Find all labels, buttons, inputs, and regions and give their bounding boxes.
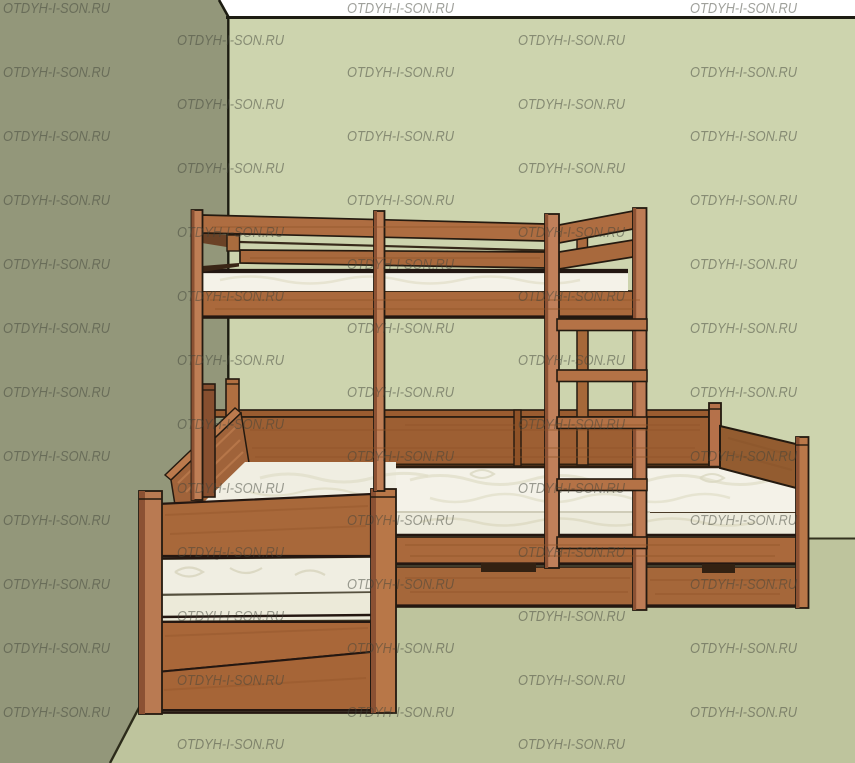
- svg-text:OTDYH-I-SON.RU: OTDYH-I-SON.RU: [347, 321, 454, 337]
- svg-text:OTDYH-I-SON.RU: OTDYH-I-SON.RU: [347, 65, 454, 81]
- svg-text:OTDYH-I-SON.RU: OTDYH-I-SON.RU: [3, 257, 110, 273]
- svg-text:OTDYH-I-SON.RU: OTDYH-I-SON.RU: [690, 257, 797, 273]
- svg-text:OTDYH-I-SON.RU: OTDYH-I-SON.RU: [347, 641, 454, 657]
- svg-text:OTDYH-I-SON.RU: OTDYH-I-SON.RU: [177, 737, 284, 753]
- svg-text:OTDYH-I-SON.RU: OTDYH-I-SON.RU: [177, 417, 284, 433]
- svg-text:OTDYH-I-SON.RU: OTDYH-I-SON.RU: [690, 513, 797, 529]
- svg-text:OTDYH-I-SON.RU: OTDYH-I-SON.RU: [518, 161, 625, 177]
- svg-text:OTDYH-I-SON.RU: OTDYH-I-SON.RU: [518, 417, 625, 433]
- svg-text:OTDYH-I-SON.RU: OTDYH-I-SON.RU: [518, 289, 625, 305]
- svg-text:OTDYH-I-SON.RU: OTDYH-I-SON.RU: [347, 577, 454, 593]
- svg-text:OTDYH-I-SON.RU: OTDYH-I-SON.RU: [3, 321, 110, 337]
- svg-text:OTDYH-I-SON.RU: OTDYH-I-SON.RU: [690, 321, 797, 337]
- svg-text:OTDYH-I-SON.RU: OTDYH-I-SON.RU: [177, 353, 284, 369]
- svg-text:OTDYH-I-SON.RU: OTDYH-I-SON.RU: [518, 353, 625, 369]
- svg-text:OTDYH-I-SON.RU: OTDYH-I-SON.RU: [3, 385, 110, 401]
- svg-text:OTDYH-I-SON.RU: OTDYH-I-SON.RU: [690, 577, 797, 593]
- svg-text:OTDYH-I-SON.RU: OTDYH-I-SON.RU: [347, 513, 454, 529]
- svg-text:OTDYH-I-SON.RU: OTDYH-I-SON.RU: [690, 705, 797, 721]
- svg-text:OTDYH-I-SON.RU: OTDYH-I-SON.RU: [690, 449, 797, 465]
- svg-text:OTDYH-I-SON.RU: OTDYH-I-SON.RU: [347, 449, 454, 465]
- svg-text:OTDYH-I-SON.RU: OTDYH-I-SON.RU: [518, 481, 625, 497]
- svg-text:OTDYH-I-SON.RU: OTDYH-I-SON.RU: [690, 641, 797, 657]
- svg-text:OTDYH-I-SON.RU: OTDYH-I-SON.RU: [177, 97, 284, 113]
- svg-text:OTDYH-I-SON.RU: OTDYH-I-SON.RU: [347, 257, 454, 273]
- svg-text:OTDYH-I-SON.RU: OTDYH-I-SON.RU: [177, 161, 284, 177]
- svg-text:OTDYH-I-SON.RU: OTDYH-I-SON.RU: [690, 193, 797, 209]
- svg-text:OTDYH-I-SON.RU: OTDYH-I-SON.RU: [690, 65, 797, 81]
- svg-text:OTDYH-I-SON.RU: OTDYH-I-SON.RU: [518, 225, 625, 241]
- svg-text:OTDYH-I-SON.RU: OTDYH-I-SON.RU: [177, 225, 284, 241]
- svg-text:OTDYH-I-SON.RU: OTDYH-I-SON.RU: [347, 193, 454, 209]
- svg-text:OTDYH-I-SON.RU: OTDYH-I-SON.RU: [3, 449, 110, 465]
- svg-text:OTDYH-I-SON.RU: OTDYH-I-SON.RU: [177, 609, 284, 625]
- svg-text:OTDYH-I-SON.RU: OTDYH-I-SON.RU: [3, 65, 110, 81]
- svg-text:OTDYH-I-SON.RU: OTDYH-I-SON.RU: [3, 577, 110, 593]
- svg-text:OTDYH-I-SON.RU: OTDYH-I-SON.RU: [3, 129, 110, 145]
- svg-text:OTDYH-I-SON.RU: OTDYH-I-SON.RU: [518, 737, 625, 753]
- svg-text:OTDYH-I-SON.RU: OTDYH-I-SON.RU: [518, 33, 625, 49]
- svg-text:OTDYH-I-SON.RU: OTDYH-I-SON.RU: [3, 193, 110, 209]
- svg-text:OTDYH-I-SON.RU: OTDYH-I-SON.RU: [690, 385, 797, 401]
- svg-text:OTDYH-I-SON.RU: OTDYH-I-SON.RU: [177, 289, 284, 305]
- svg-text:OTDYH-I-SON.RU: OTDYH-I-SON.RU: [177, 673, 284, 689]
- svg-text:OTDYH-I-SON.RU: OTDYH-I-SON.RU: [177, 33, 284, 49]
- svg-text:OTDYH-I-SON.RU: OTDYH-I-SON.RU: [3, 641, 110, 657]
- svg-text:OTDYH-I-SON.RU: OTDYH-I-SON.RU: [347, 385, 454, 401]
- svg-text:OTDYH-I-SON.RU: OTDYH-I-SON.RU: [3, 705, 110, 721]
- svg-text:OTDYH-I-SON.RU: OTDYH-I-SON.RU: [518, 609, 625, 625]
- svg-text:OTDYH-I-SON.RU: OTDYH-I-SON.RU: [3, 1, 110, 17]
- svg-text:OTDYH-I-SON.RU: OTDYH-I-SON.RU: [177, 481, 284, 497]
- svg-text:OTDYH-I-SON.RU: OTDYH-I-SON.RU: [347, 129, 454, 145]
- svg-text:OTDYH-I-SON.RU: OTDYH-I-SON.RU: [690, 129, 797, 145]
- svg-text:OTDYH-I-SON.RU: OTDYH-I-SON.RU: [347, 705, 454, 721]
- svg-text:OTDYH-I-SON.RU: OTDYH-I-SON.RU: [690, 1, 797, 17]
- svg-text:OTDYH-I-SON.RU: OTDYH-I-SON.RU: [347, 1, 454, 17]
- svg-text:OTDYH-I-SON.RU: OTDYH-I-SON.RU: [518, 673, 625, 689]
- svg-text:OTDYH-I-SON.RU: OTDYH-I-SON.RU: [177, 545, 284, 561]
- svg-text:OTDYH-I-SON.RU: OTDYH-I-SON.RU: [518, 545, 625, 561]
- svg-text:OTDYH-I-SON.RU: OTDYH-I-SON.RU: [3, 513, 110, 529]
- svg-text:OTDYH-I-SON.RU: OTDYH-I-SON.RU: [518, 97, 625, 113]
